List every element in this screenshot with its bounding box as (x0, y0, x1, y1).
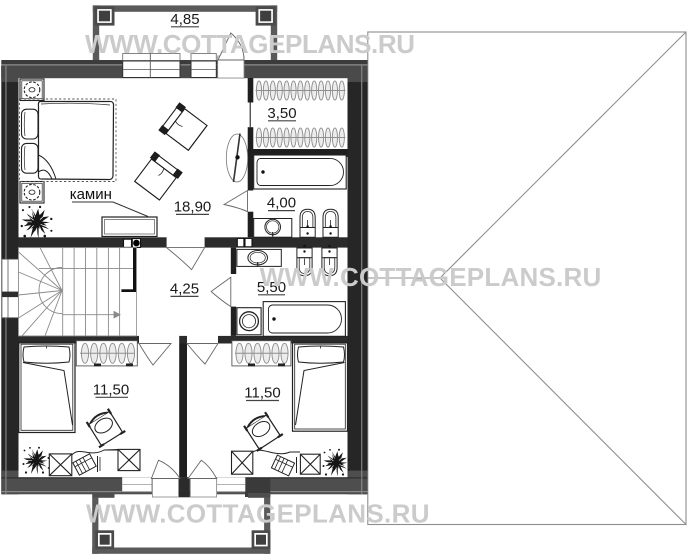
svg-text:11,50: 11,50 (244, 385, 280, 402)
svg-text:11,50: 11,50 (93, 381, 129, 398)
svg-text:камин: камин (70, 186, 112, 203)
svg-text:WWW.COTTAGEPLANS.RU: WWW.COTTAGEPLANS.RU (86, 498, 430, 528)
svg-text:4,00: 4,00 (267, 195, 296, 212)
svg-text:WWW.COTTAGEPLANS.RU: WWW.COTTAGEPLANS.RU (260, 262, 602, 292)
svg-text:18,90: 18,90 (174, 199, 212, 216)
svg-text:4,85: 4,85 (170, 11, 199, 28)
svg-text:3,50: 3,50 (267, 105, 296, 122)
svg-text:4,25: 4,25 (170, 280, 199, 297)
svg-text:WWW.COTTAGEPLANS.RU: WWW.COTTAGEPLANS.RU (85, 29, 415, 59)
